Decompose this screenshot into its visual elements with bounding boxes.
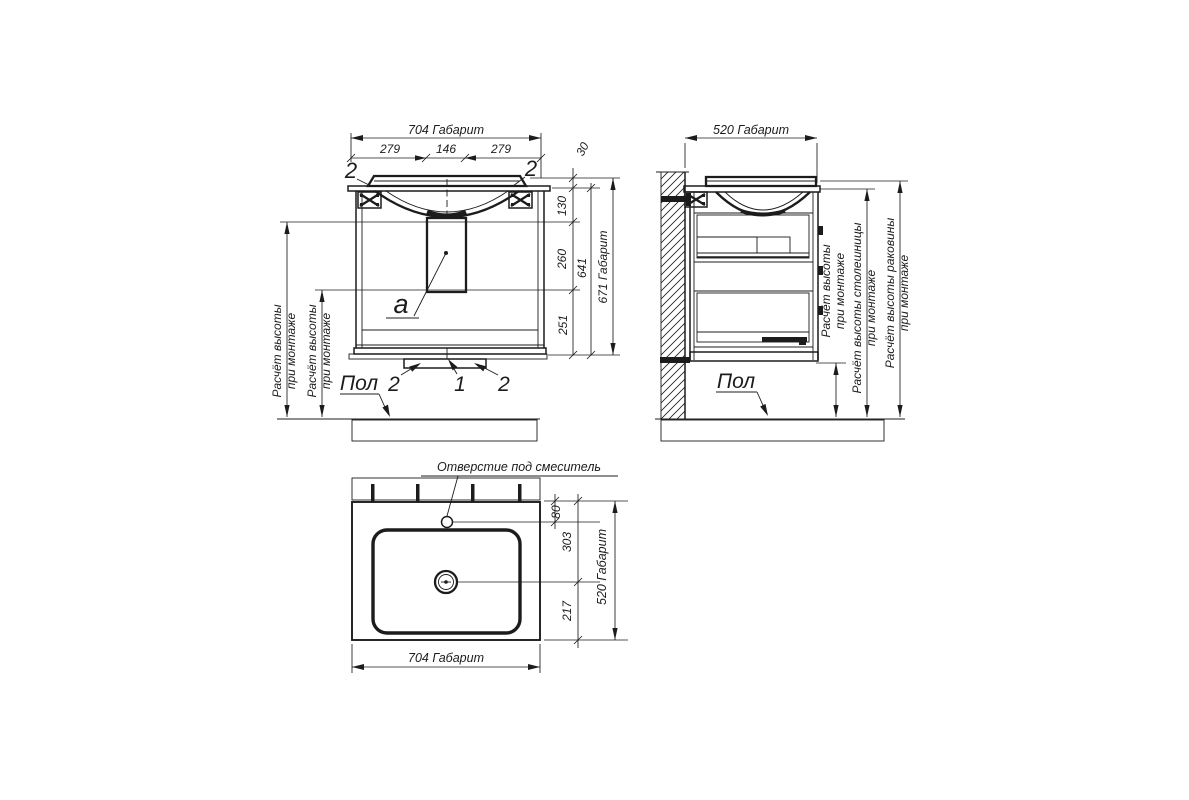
side-floor-label: Пол (716, 370, 768, 416)
dim-text: 279 (490, 142, 511, 156)
technical-drawing-page: а 704 Габарит 279 146 279 (0, 0, 1189, 800)
side-floor (655, 419, 905, 441)
dim-text: 80 (549, 505, 563, 519)
section-label: а (393, 289, 408, 319)
front-dims-left: Расчёт высоты при монтаже Расчёт высоты … (270, 222, 333, 417)
side-dim-depth-total: 520 Габарит (685, 123, 817, 183)
floor-text: Пол (340, 372, 378, 395)
dim-text: 251 (556, 315, 570, 336)
plan-dim-width-total: 704 Габарит (352, 644, 540, 673)
front-callout-foot-right: 2 (474, 363, 510, 396)
vanity-drawing-svg: а 704 Габарит 279 146 279 (0, 0, 1189, 800)
plan-wall (352, 478, 540, 502)
front-callout-rim-left: 2 (344, 158, 371, 186)
note-text: при монтаже (897, 255, 911, 332)
front-floor (277, 419, 540, 441)
dim-text: 217 (560, 600, 574, 622)
dim-text: 641 (575, 258, 589, 278)
dim-text: 260 (555, 249, 569, 270)
callout-text: 1 (454, 373, 466, 396)
front-mount-plate-left (358, 192, 381, 208)
dim-text: 130 (555, 196, 569, 216)
note-text: Расчёт высоты (819, 244, 833, 337)
section-hatch-column: а (386, 218, 466, 319)
floor-text: Пол (717, 370, 755, 393)
note-text: при монтаже (284, 313, 298, 390)
side-dims-right: Расчёт высоты при монтаже Расчёт высоты … (816, 181, 911, 417)
note-text: Расчёт высоты раковины (883, 218, 897, 369)
faucet-hole-text: Отверстие под смеситель (437, 460, 601, 474)
callout-text: 2 (387, 373, 400, 396)
note-text: Расчёт высоты (305, 304, 319, 397)
front-callout-rim-right: 2 (513, 156, 537, 186)
front-floor-label: Пол (340, 372, 390, 417)
note-text: Расчёт высоты (270, 304, 284, 397)
note-text: Расчёт высоты столешницы (850, 222, 864, 393)
note-text: при монтаже (319, 313, 333, 390)
dim-text: 520 Габарит (713, 123, 789, 137)
plan-countertop (352, 502, 540, 640)
dim-text: 303 (560, 532, 574, 552)
side-wall (656, 172, 689, 419)
callout-text: 2 (344, 158, 357, 183)
dim-text: 704 Габарит (408, 651, 484, 665)
note-text: при монтаже (833, 253, 847, 330)
front-callout-center: 1 (448, 359, 466, 396)
callout-text: 2 (497, 373, 510, 396)
dim-text: 279 (379, 142, 400, 156)
callout-text: 2 (524, 156, 537, 181)
front-view: а 704 Габарит 279 146 279 (270, 123, 620, 441)
side-view: 520 Габарит Расчёт высоты при монтаже Ра… (655, 123, 911, 441)
plan-view: Отверстие под смеситель 80 303 217 520 Г… (352, 460, 628, 673)
dim-text: 146 (436, 142, 456, 156)
front-mount-plate-right (509, 192, 532, 208)
note-text: при монтаже (864, 270, 878, 347)
dim-text: 671 Габарит (596, 231, 610, 304)
front-dim-width-chain: 279 146 279 (347, 142, 545, 162)
dim-text: 520 Габарит (595, 529, 609, 605)
dim-text: 30 (573, 140, 592, 159)
dim-text: 704 Габарит (408, 123, 484, 137)
